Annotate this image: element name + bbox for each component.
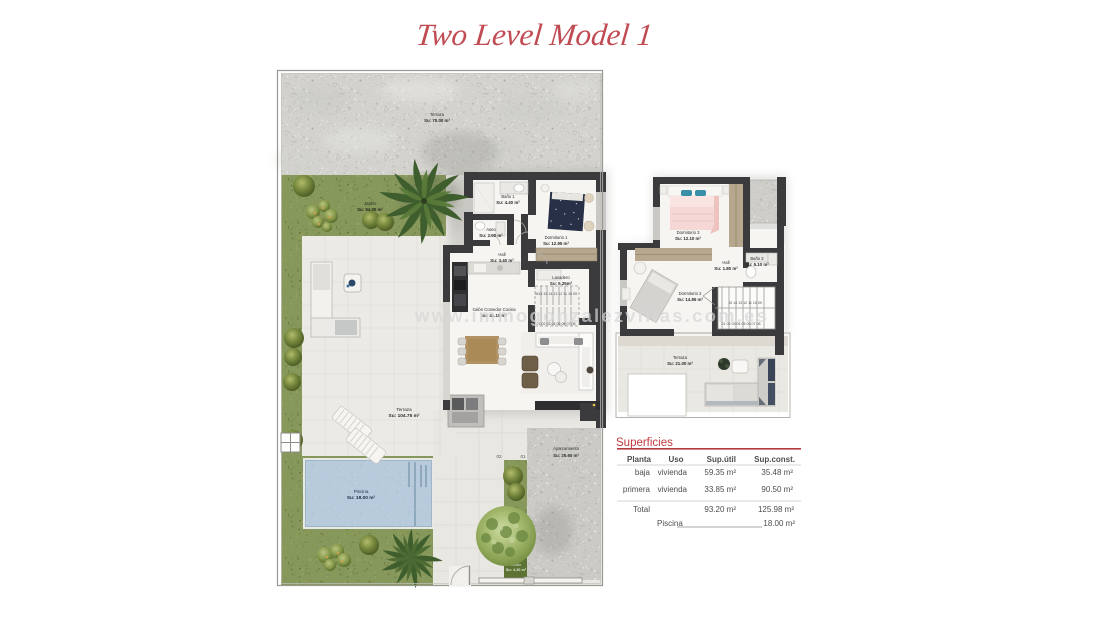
svg-text:vivienda: vivienda [658, 468, 688, 477]
svg-text:Su: 12.10 m²: Su: 12.10 m² [675, 236, 701, 241]
svg-text:primera: primera [623, 485, 651, 494]
svg-text:Terraza: Terraza [673, 355, 688, 360]
svg-text:Su: 5.10 m²: Su: 5.10 m² [745, 262, 769, 267]
svg-text:Dormitorio 1: Dormitorio 1 [545, 235, 568, 240]
svg-text:Su: 2.00 m²: Su: 2.00 m² [479, 233, 503, 238]
svg-text:Uso: Uso [668, 455, 683, 464]
svg-text:Sup.const.: Sup.const. [754, 455, 795, 464]
svg-text:Dormitorio 3: Dormitorio 3 [677, 230, 700, 235]
svg-text:baja: baja [635, 468, 651, 477]
svg-text:90.50 m²: 90.50 m² [761, 485, 793, 494]
svg-text:Two Level Model 1: Two Level Model 1 [414, 17, 654, 52]
svg-text:Piscina: Piscina [354, 489, 369, 494]
svg-text:33.85 m²: 33.85 m² [704, 485, 736, 494]
svg-text:Su: 12.95 m²: Su: 12.95 m² [543, 241, 569, 246]
svg-text:Sup.útil: Sup.útil [707, 455, 736, 464]
svg-text:Baño 1: Baño 1 [501, 194, 515, 199]
svg-text:Aseo: Aseo [486, 227, 496, 232]
svg-text:W16 15 14 13 12 11 10 09: W16 15 14 13 12 11 10 09 [535, 292, 577, 296]
svg-text:18.00 m²: 18.00 m² [763, 519, 795, 528]
svg-text:Terraza: Terraza [430, 112, 445, 117]
svg-text:www.immogonzalezvillas.com.es: www.immogonzalezvillas.com.es [414, 305, 769, 326]
svg-text:59.35 m²: 59.35 m² [704, 468, 736, 477]
svg-text:35.48 m²: 35.48 m² [761, 468, 793, 477]
svg-text:Dormitorio 2: Dormitorio 2 [679, 291, 702, 296]
svg-text:Su: 3.40 m²: Su: 3.40 m² [490, 258, 514, 263]
svg-text:Su: 104.75 m²: Su: 104.75 m² [389, 413, 420, 419]
svg-text:Hall: Hall [722, 260, 729, 265]
svg-text:Superficies: Superficies [616, 437, 673, 449]
svg-text:Su: 70.00 m²: Su: 70.00 m² [424, 118, 450, 123]
svg-text:Su: 1.80 m²: Su: 1.80 m² [714, 266, 738, 271]
svg-text:Planta: Planta [627, 455, 652, 464]
svg-text:Su: 4.20 m²: Su: 4.20 m² [506, 568, 527, 572]
svg-text:Total: Total [633, 505, 650, 514]
svg-text:Hall: Hall [498, 252, 505, 257]
svg-text:Su: 25.60 m²: Su: 25.60 m² [553, 453, 579, 458]
svg-text:Jardín: Jardín [364, 201, 376, 206]
svg-text:02: 02 [497, 454, 502, 459]
svg-text:Su: 18.00 m²: Su: 18.00 m² [347, 495, 376, 501]
svg-text:01: 01 [521, 454, 526, 459]
svg-text:Lavadero: Lavadero [552, 275, 570, 280]
svg-text:Aparcamiento: Aparcamiento [553, 446, 580, 451]
svg-text:93.20 m²: 93.20 m² [704, 505, 736, 514]
svg-text:125.98 m²: 125.98 m² [758, 505, 794, 514]
svg-text:Su: 5.25m²: Su: 5.25m² [550, 281, 573, 286]
svg-text:Su: 21.00 m²: Su: 21.00 m² [667, 361, 693, 366]
svg-text:vivienda: vivienda [658, 485, 688, 494]
svg-text:Su: 4.40 m²: Su: 4.40 m² [496, 200, 520, 205]
svg-text:Su: 14.85 m²: Su: 14.85 m² [677, 297, 703, 302]
svg-text:Terraza: Terraza [396, 407, 412, 412]
svg-text:Baño 2: Baño 2 [750, 256, 764, 261]
